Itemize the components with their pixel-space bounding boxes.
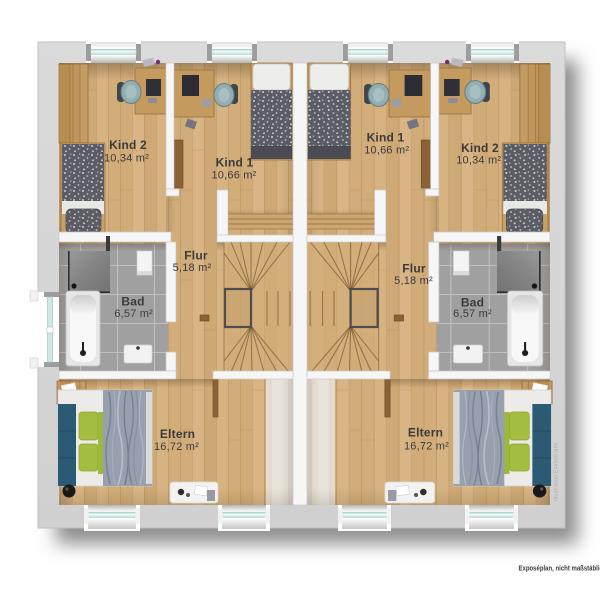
svg-text:Flur: Flur [184, 249, 208, 263]
svg-text:10,66 m²: 10,66 m² [364, 145, 409, 157]
svg-text:Eltern: Eltern [160, 427, 195, 441]
svg-text:6,57 m²: 6,57 m² [453, 308, 492, 320]
svg-text:Kind 2: Kind 2 [461, 141, 499, 155]
svg-text:16,72 m²: 16,72 m² [404, 441, 449, 453]
svg-text:10,66 m²: 10,66 m² [211, 170, 256, 182]
svg-text:10,34 m²: 10,34 m² [104, 153, 149, 165]
svg-text:Flur: Flur [402, 262, 426, 276]
svg-text:Bad: Bad [121, 295, 144, 309]
svg-text:6,57 m²: 6,57 m² [114, 308, 153, 320]
svg-text:5,18 m²: 5,18 m² [394, 275, 433, 287]
svg-text:Kind 2: Kind 2 [109, 138, 147, 152]
svg-text:Kind 1: Kind 1 [216, 156, 254, 170]
svg-text:Illustration:EmilioGrafik: Illustration:EmilioGrafik [554, 442, 560, 501]
svg-text:16,72 m²: 16,72 m² [154, 441, 199, 453]
svg-text:Exposéplan, nicht maßstäblich: Exposéplan, nicht maßstäblich [519, 564, 600, 573]
svg-text:Eltern: Eltern [408, 426, 443, 440]
svg-text:5,18 m²: 5,18 m² [173, 262, 212, 274]
svg-text:10,34 m²: 10,34 m² [456, 155, 501, 167]
svg-text:Kind 1: Kind 1 [367, 131, 405, 145]
